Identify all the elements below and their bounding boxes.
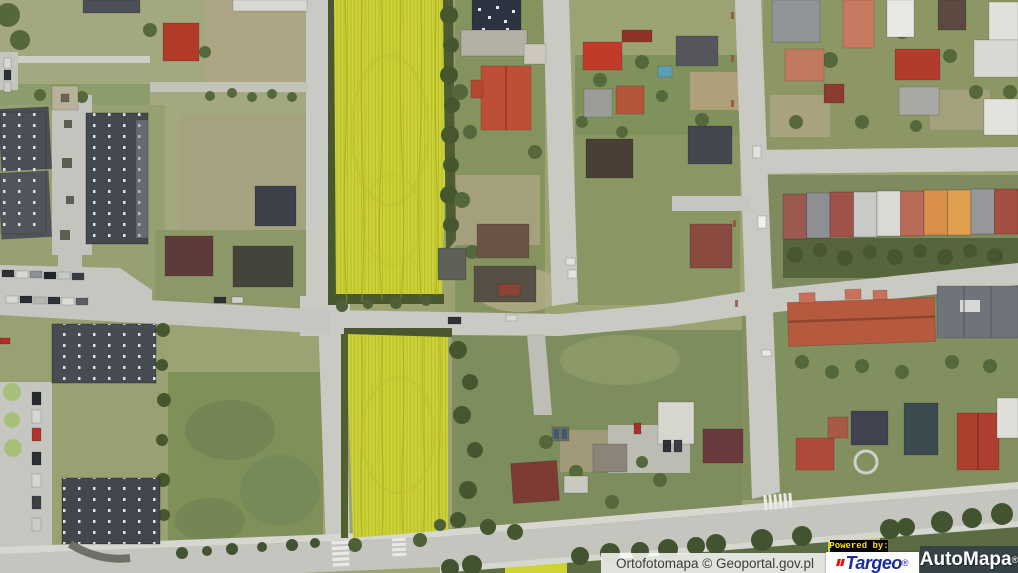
row-houses-north <box>783 189 1018 239</box>
targeo-registered-mark: ® <box>902 558 909 568</box>
map-canvas[interactable] <box>0 0 1018 573</box>
automapa-registered-mark: ® <box>1012 555 1018 565</box>
map-viewport: Ortofotomapa © Geoportal.gov.pl Powered … <box>0 0 1018 573</box>
attribution-label: Ortofotomapa © Geoportal.gov.pl <box>601 553 829 573</box>
targeo-logo[interactable]: Targeo® <box>826 552 919 573</box>
targeo-logo-text: Targeo <box>846 554 902 572</box>
rapeseed-field-south <box>341 328 452 538</box>
powered-by-label: Powered by: <box>830 540 888 552</box>
targeo-red-mark-icon <box>837 559 845 566</box>
rapeseed-field-north <box>328 0 456 305</box>
automapa-logo[interactable]: AutoMapa® <box>920 546 1018 573</box>
automapa-logo-text: AutoMapa <box>920 550 1012 569</box>
